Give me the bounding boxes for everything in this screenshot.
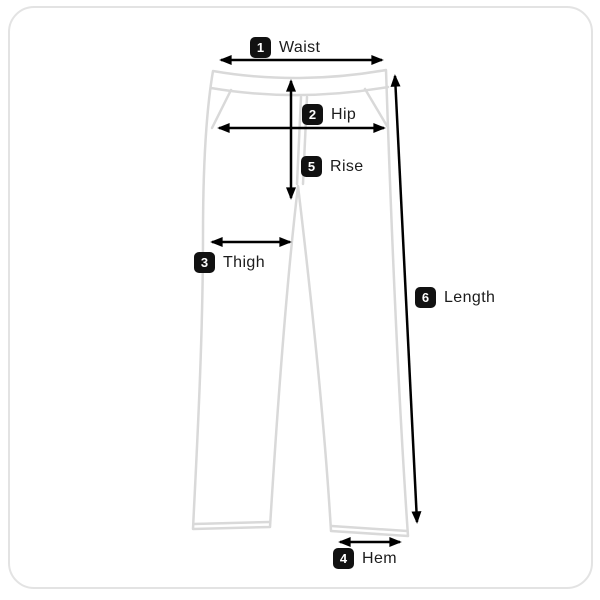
hem-label-text: Hem: [362, 551, 397, 567]
hem-number-badge: 4: [333, 548, 354, 569]
length-arrow: [395, 76, 417, 522]
length-number-badge: 6: [415, 287, 436, 308]
measurement-label-length: 6 Length: [415, 287, 495, 308]
hip-label-text: Hip: [331, 107, 356, 123]
measurement-label-hem: 4 Hem: [333, 548, 397, 569]
length-label-text: Length: [444, 290, 495, 306]
rise-number-badge: 5: [301, 156, 322, 177]
right-hem-cuff: [332, 526, 408, 531]
waistband-line: [211, 87, 388, 95]
waist-number-badge: 1: [250, 37, 271, 58]
thigh-number-badge: 3: [194, 252, 215, 273]
left-pocket-line: [212, 90, 231, 128]
right-pocket-line: [365, 89, 387, 126]
pants-measurement-drawing: [0, 0, 600, 600]
thigh-label-text: Thigh: [223, 255, 265, 271]
measurement-label-waist: 1 Waist: [250, 37, 320, 58]
size-guide-diagram: 1 Waist 2 Hip 5 Rise 3 Thigh 6 Length 4 …: [0, 0, 600, 600]
measurement-label-thigh: 3 Thigh: [194, 252, 265, 273]
measurement-label-rise: 5 Rise: [301, 156, 364, 177]
measurement-label-hip: 2 Hip: [302, 104, 356, 125]
hip-number-badge: 2: [302, 104, 323, 125]
measurement-arrows: [212, 60, 417, 542]
pants-outline: [193, 70, 408, 536]
rise-label-text: Rise: [330, 159, 364, 175]
pants-silhouette: [193, 70, 408, 536]
waist-label-text: Waist: [279, 40, 320, 56]
left-hem-cuff: [194, 522, 270, 524]
